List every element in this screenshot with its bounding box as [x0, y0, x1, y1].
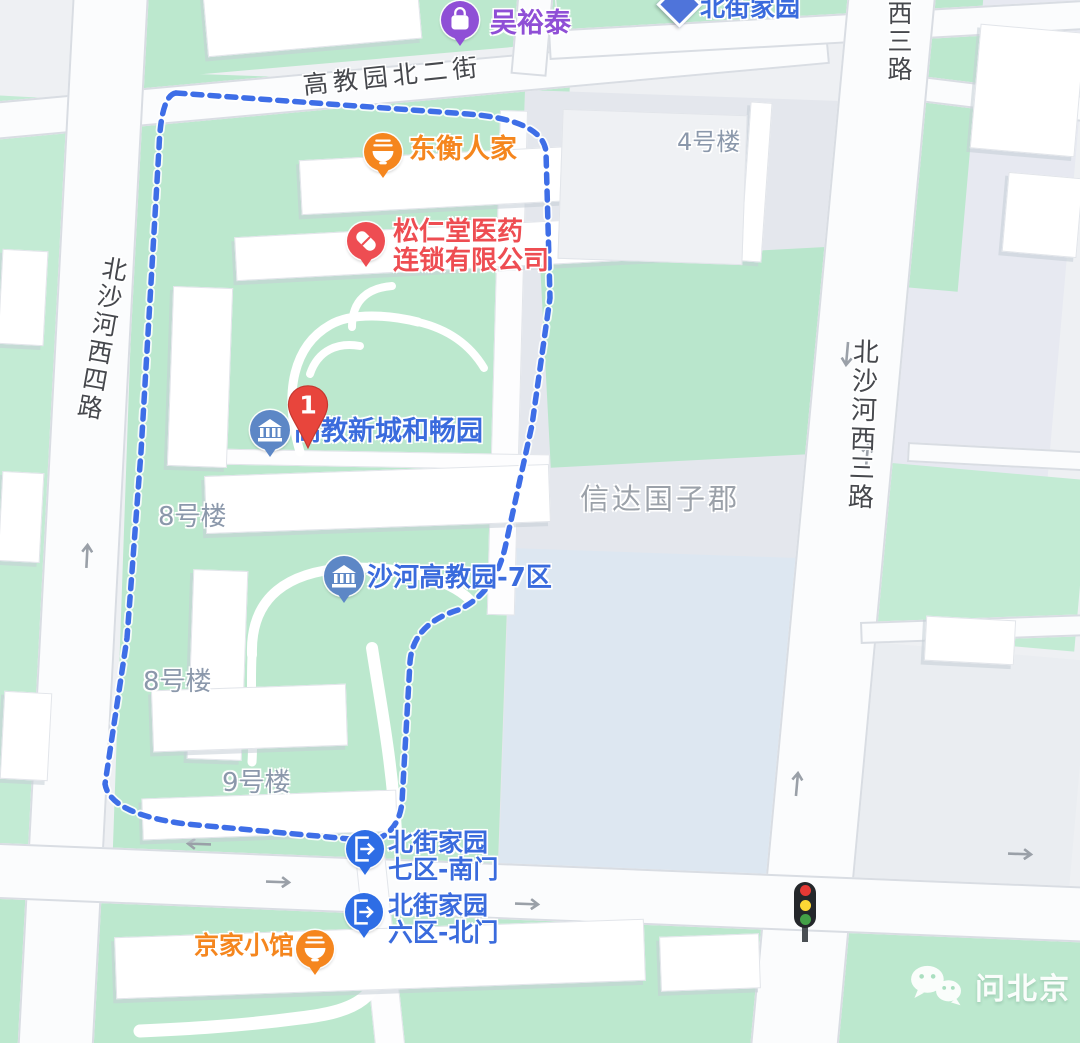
- road-arrow-left: [184, 837, 214, 850]
- poi-label-songrentang[interactable]: 松仁堂医药 连锁有限公司: [393, 218, 549, 276]
- watermark-text: 问北京: [975, 964, 1071, 1008]
- building-label-4: 4号楼: [677, 122, 740, 157]
- poi-label-jingjia[interactable]: 京家小馆: [194, 932, 294, 959]
- road-arrow-up-left-road: [80, 541, 94, 572]
- poi-label-gate6-line1: 北街家园: [388, 892, 498, 919]
- poi-label-gate7-line1: 北街家园: [388, 829, 498, 856]
- poi-pin-songrentang[interactable]: [347, 222, 385, 260]
- building: [167, 286, 233, 468]
- road-label-right-top: 河西三路: [880, 0, 916, 84]
- residence-icon: [250, 410, 290, 450]
- building-label-9: 9号楼: [222, 762, 291, 799]
- poi-label-shahe7[interactable]: 沙河高教园-7区: [367, 565, 552, 592]
- poi-label-dongheng[interactable]: 东衡人家: [409, 136, 517, 163]
- poi-label-songrentang-line1: 松仁堂医药: [393, 218, 549, 247]
- watermark: 问北京: [908, 962, 1071, 1010]
- map-canvas[interactable]: 高教园北二街 北沙河西四路 北沙河西三路 河西三路 4号楼 8号楼 8号楼 9号…: [0, 0, 1080, 1043]
- building: [970, 24, 1080, 158]
- poi-pin-dongheng[interactable]: [364, 133, 402, 171]
- road-arrow-right-2: [512, 897, 542, 910]
- shopping-bag-icon: [441, 1, 479, 39]
- building: [0, 249, 48, 346]
- road-label-right: 北沙河西三路: [840, 337, 883, 512]
- poi-label-gate6-line2: 六区-北门: [388, 919, 498, 946]
- poi-label-songrentang-line2: 连锁有限公司: [393, 247, 549, 276]
- numbered-marker-1[interactable]: 1: [285, 382, 331, 454]
- restaurant-icon: [364, 133, 402, 171]
- poi-label-gate6[interactable]: 北街家园 六区-北门: [388, 892, 498, 946]
- poi-label-beijie-top[interactable]: 北街家园: [700, 0, 800, 21]
- building: [0, 471, 44, 563]
- poi-pin-wuyutai[interactable]: [441, 1, 479, 39]
- building: [924, 616, 1016, 666]
- traffic-light-green: [800, 914, 811, 925]
- poi-label-gate7[interactable]: 北街家园 七区-南门: [388, 829, 498, 883]
- building: [659, 933, 761, 991]
- residence-icon: [324, 556, 364, 596]
- building-label-8b: 8号楼: [143, 661, 212, 698]
- traffic-light-red: [800, 885, 811, 896]
- gate-icon: [346, 830, 384, 868]
- traffic-light-pole: [802, 926, 808, 942]
- road-arrow-right: [263, 875, 293, 888]
- building-label-8a: 8号楼: [158, 496, 227, 533]
- building: [0, 691, 52, 781]
- poi-label-wuyutai[interactable]: 吴裕泰: [490, 10, 571, 37]
- poi-pin-jingjia[interactable]: [296, 930, 334, 968]
- wechat-icon: [908, 962, 966, 1010]
- building: [1002, 172, 1080, 258]
- marker-number: 1: [299, 390, 317, 419]
- poi-pin-hechang[interactable]: [250, 410, 290, 450]
- poi-label-gate7-line2: 七区-南门: [388, 856, 498, 883]
- traffic-light-icon: [794, 882, 816, 928]
- road-arrow-right-3: [1005, 847, 1035, 860]
- poi-pin-shahe7[interactable]: [324, 556, 364, 596]
- traffic-light-yellow: [800, 900, 811, 911]
- gate-icon: [345, 893, 383, 931]
- restaurant-icon: [296, 930, 334, 968]
- poi-pin-gate6[interactable]: [345, 893, 383, 931]
- building-8a: [204, 464, 551, 534]
- area-label-xinda: 信达国子郡: [580, 476, 740, 518]
- poi-pin-gate7[interactable]: [346, 830, 384, 868]
- pharmacy-icon: [347, 222, 385, 260]
